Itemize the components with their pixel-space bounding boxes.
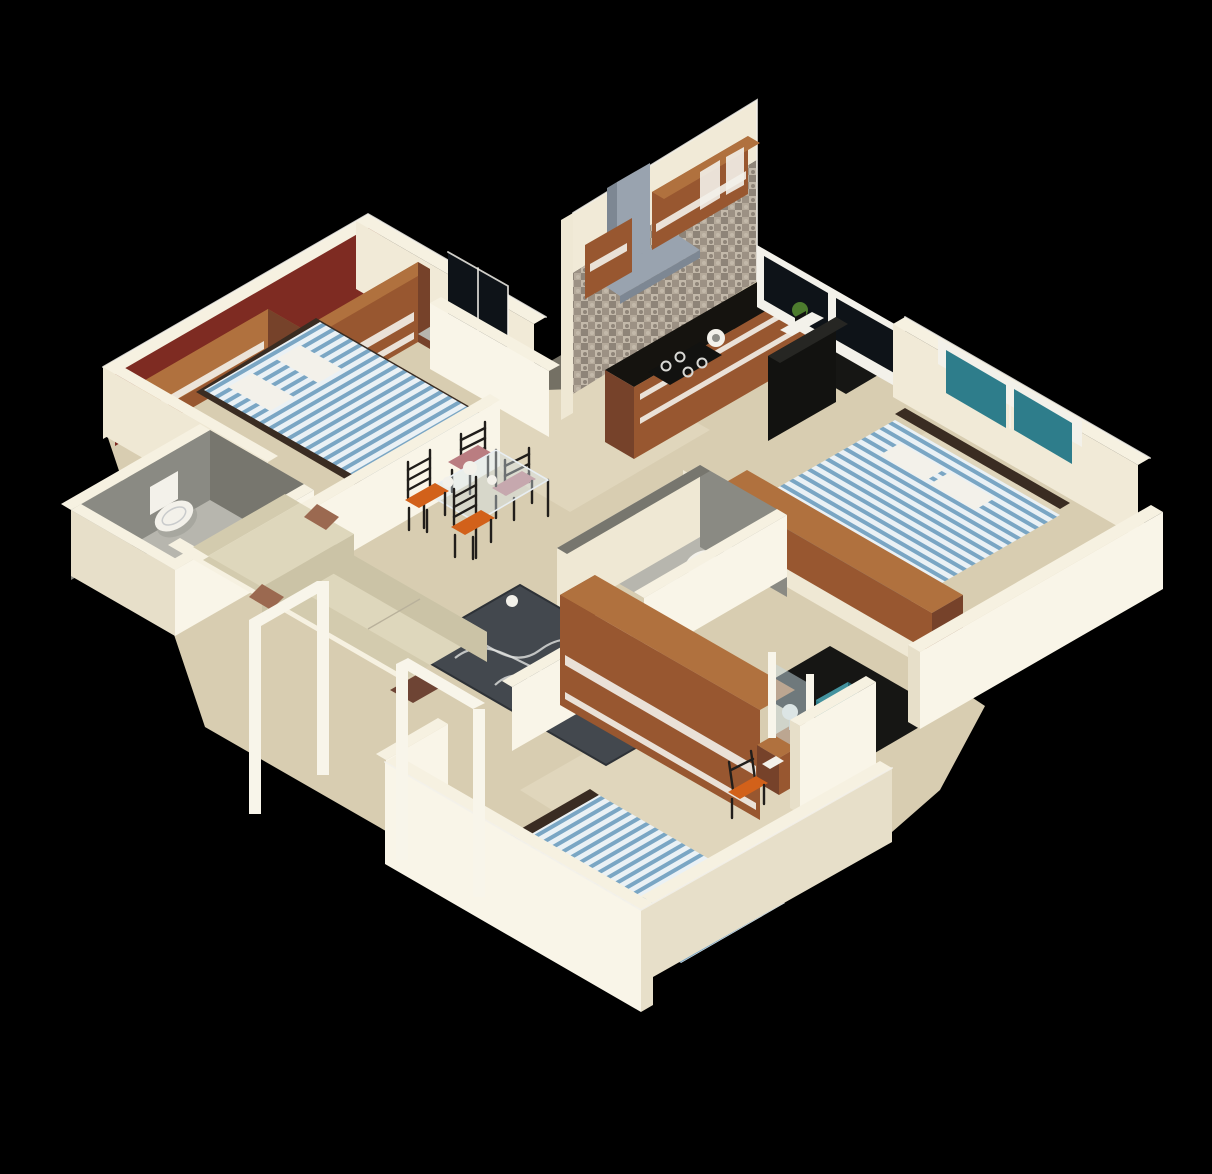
door-post — [473, 709, 485, 897]
tableware — [487, 475, 497, 485]
sink-drain — [712, 334, 720, 342]
isometric-scene — [0, 0, 1212, 1174]
door-post — [396, 664, 408, 860]
decor-on-rug — [506, 595, 518, 607]
door-post — [249, 620, 261, 814]
parapet-side — [790, 720, 800, 814]
tableware — [463, 461, 477, 475]
kitchen-wall-edge — [561, 213, 573, 420]
floor-plan-render — [0, 0, 1212, 1174]
corner-cap — [641, 903, 653, 1012]
se-wall-corner — [908, 645, 920, 729]
tableware — [443, 477, 454, 488]
door-post — [317, 581, 329, 775]
balcony-door-post — [768, 652, 776, 738]
